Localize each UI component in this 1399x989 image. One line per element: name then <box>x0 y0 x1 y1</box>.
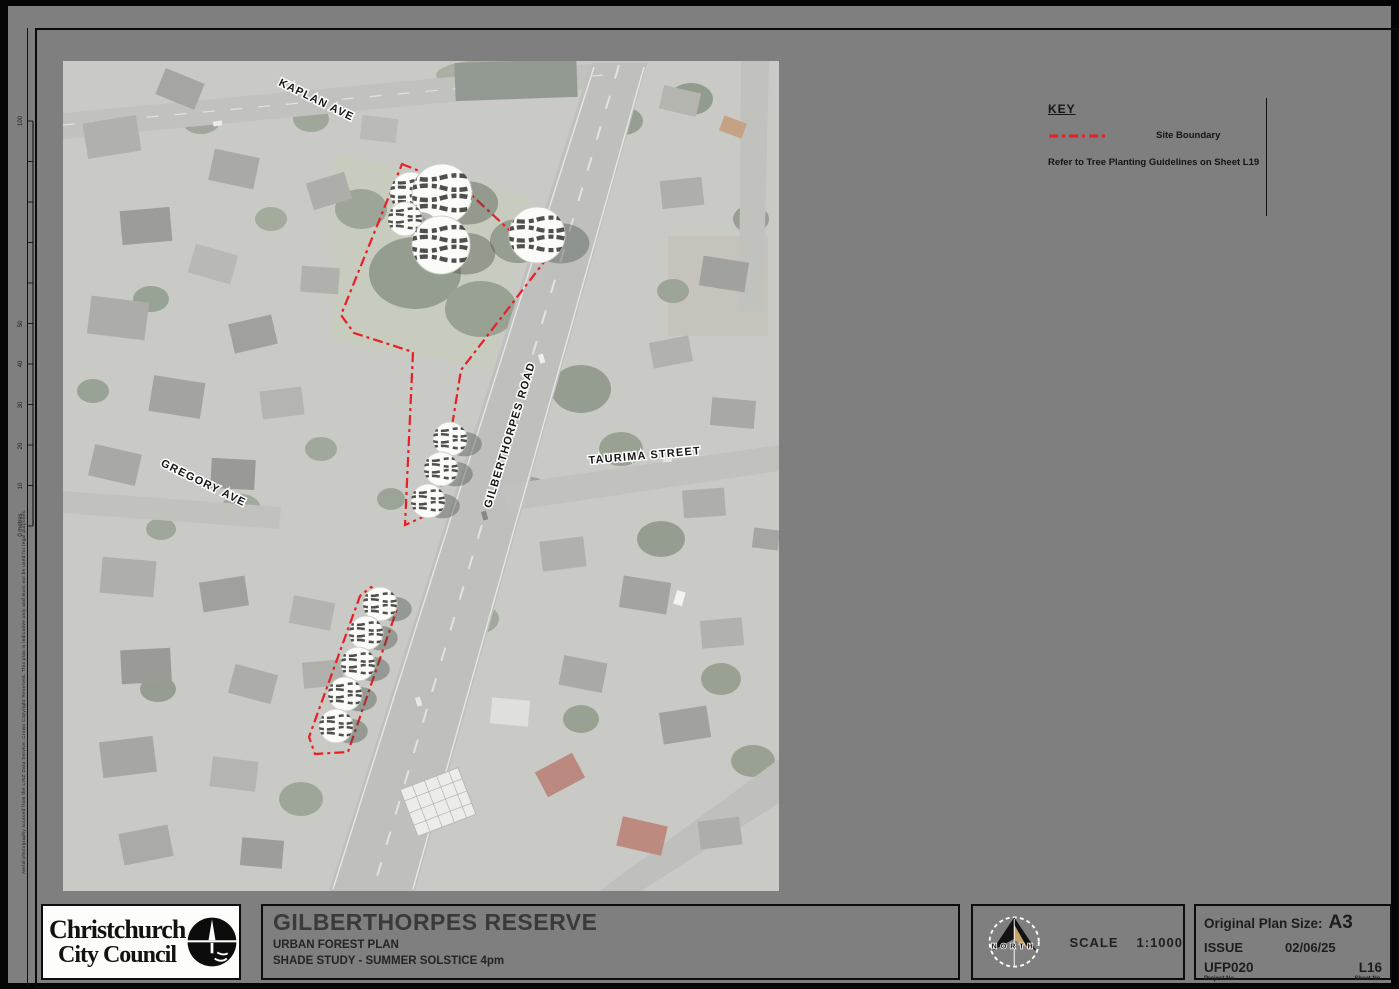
council-logo-text: Christchurch City Council <box>43 917 185 967</box>
margin-scale-bar: 10050403020100 metres <box>14 28 38 986</box>
scalebar-label: 50 <box>18 320 24 327</box>
sheet-number-label: Sheet No. <box>1354 976 1382 982</box>
north-arrow-icon: NORTH <box>973 906 1055 978</box>
svg-text:NORTH: NORTH <box>992 942 1037 950</box>
project-number: UFP020 <box>1204 960 1254 975</box>
title-block: GILBERTHORPES RESERVE URBAN FOREST PLAN … <box>261 904 960 980</box>
project-sheet-row: UFP020 L16 <box>1204 960 1382 975</box>
plan-size-row: Original Plan Size:A3 <box>1204 912 1382 934</box>
project-sheet-sublabels: Project No. Sheet No. <box>1204 976 1382 982</box>
issue-row: ISSUE 02/06/25 <box>1204 940 1382 955</box>
north-scale-box: NORTH SCALE 1:1000 <box>971 904 1185 980</box>
sheet-title: GILBERTHORPES RESERVE <box>273 909 958 936</box>
key-row-site-boundary: Site Boundary <box>1048 130 1263 141</box>
issue-date: 02/06/25 <box>1285 940 1336 955</box>
scale-label: SCALE <box>1069 935 1118 950</box>
scalebar-label: 30 <box>18 401 24 408</box>
plan-info-box: Original Plan Size:A3 ISSUE 02/06/25 UFP… <box>1194 904 1392 980</box>
plan-size-label: Original Plan Size: <box>1204 916 1323 931</box>
key-legend: KEY Site Boundary Refer to Tree Planting… <box>1048 102 1263 168</box>
logo-line2: City Council <box>49 943 185 967</box>
logo-line1: Christchurch <box>49 917 185 943</box>
scalebar-label: 10 <box>18 482 24 489</box>
key-divider-line <box>1266 98 1267 216</box>
project-number-label: Project No. <box>1204 976 1236 982</box>
drawing-sheet: 10050403020100 metres Aerial photography… <box>8 6 1391 983</box>
issue-label: ISSUE <box>1204 940 1243 955</box>
margin-fine-print: Aerial photography sourced from the LINZ… <box>21 529 26 874</box>
sheet-subtitle: URBAN FOREST PLAN <box>273 939 958 951</box>
sheet-description: SHADE STUDY - SUMMER SOLSTICE 4pm <box>273 955 958 967</box>
scalebar-label: 20 <box>18 442 24 449</box>
aerial-map-svg: KAPLAN AVEGILBERTHORPES ROADTAURIMA STRE… <box>63 61 779 891</box>
site-boundary-swatch <box>1048 132 1110 140</box>
aerial-map: KAPLAN AVEGILBERTHORPES ROADTAURIMA STRE… <box>63 61 779 891</box>
plan-size-value: A3 <box>1329 912 1353 933</box>
key-title: KEY <box>1048 102 1263 116</box>
site-boundary-label: Site Boundary <box>1156 130 1220 141</box>
scalebar-label: 100 <box>18 115 24 126</box>
sheet-number: L16 <box>1359 960 1382 975</box>
scalebar-label: 40 <box>18 360 24 367</box>
plan-sheet-canvas: 10050403020100 metres Aerial photography… <box>0 0 1399 989</box>
scale-value: 1:1000 <box>1137 935 1183 950</box>
key-note: Refer to Tree Planting Guidelines on She… <box>1048 157 1263 168</box>
council-logo-box: Christchurch City Council <box>41 904 241 980</box>
council-logo-icon <box>185 910 239 974</box>
